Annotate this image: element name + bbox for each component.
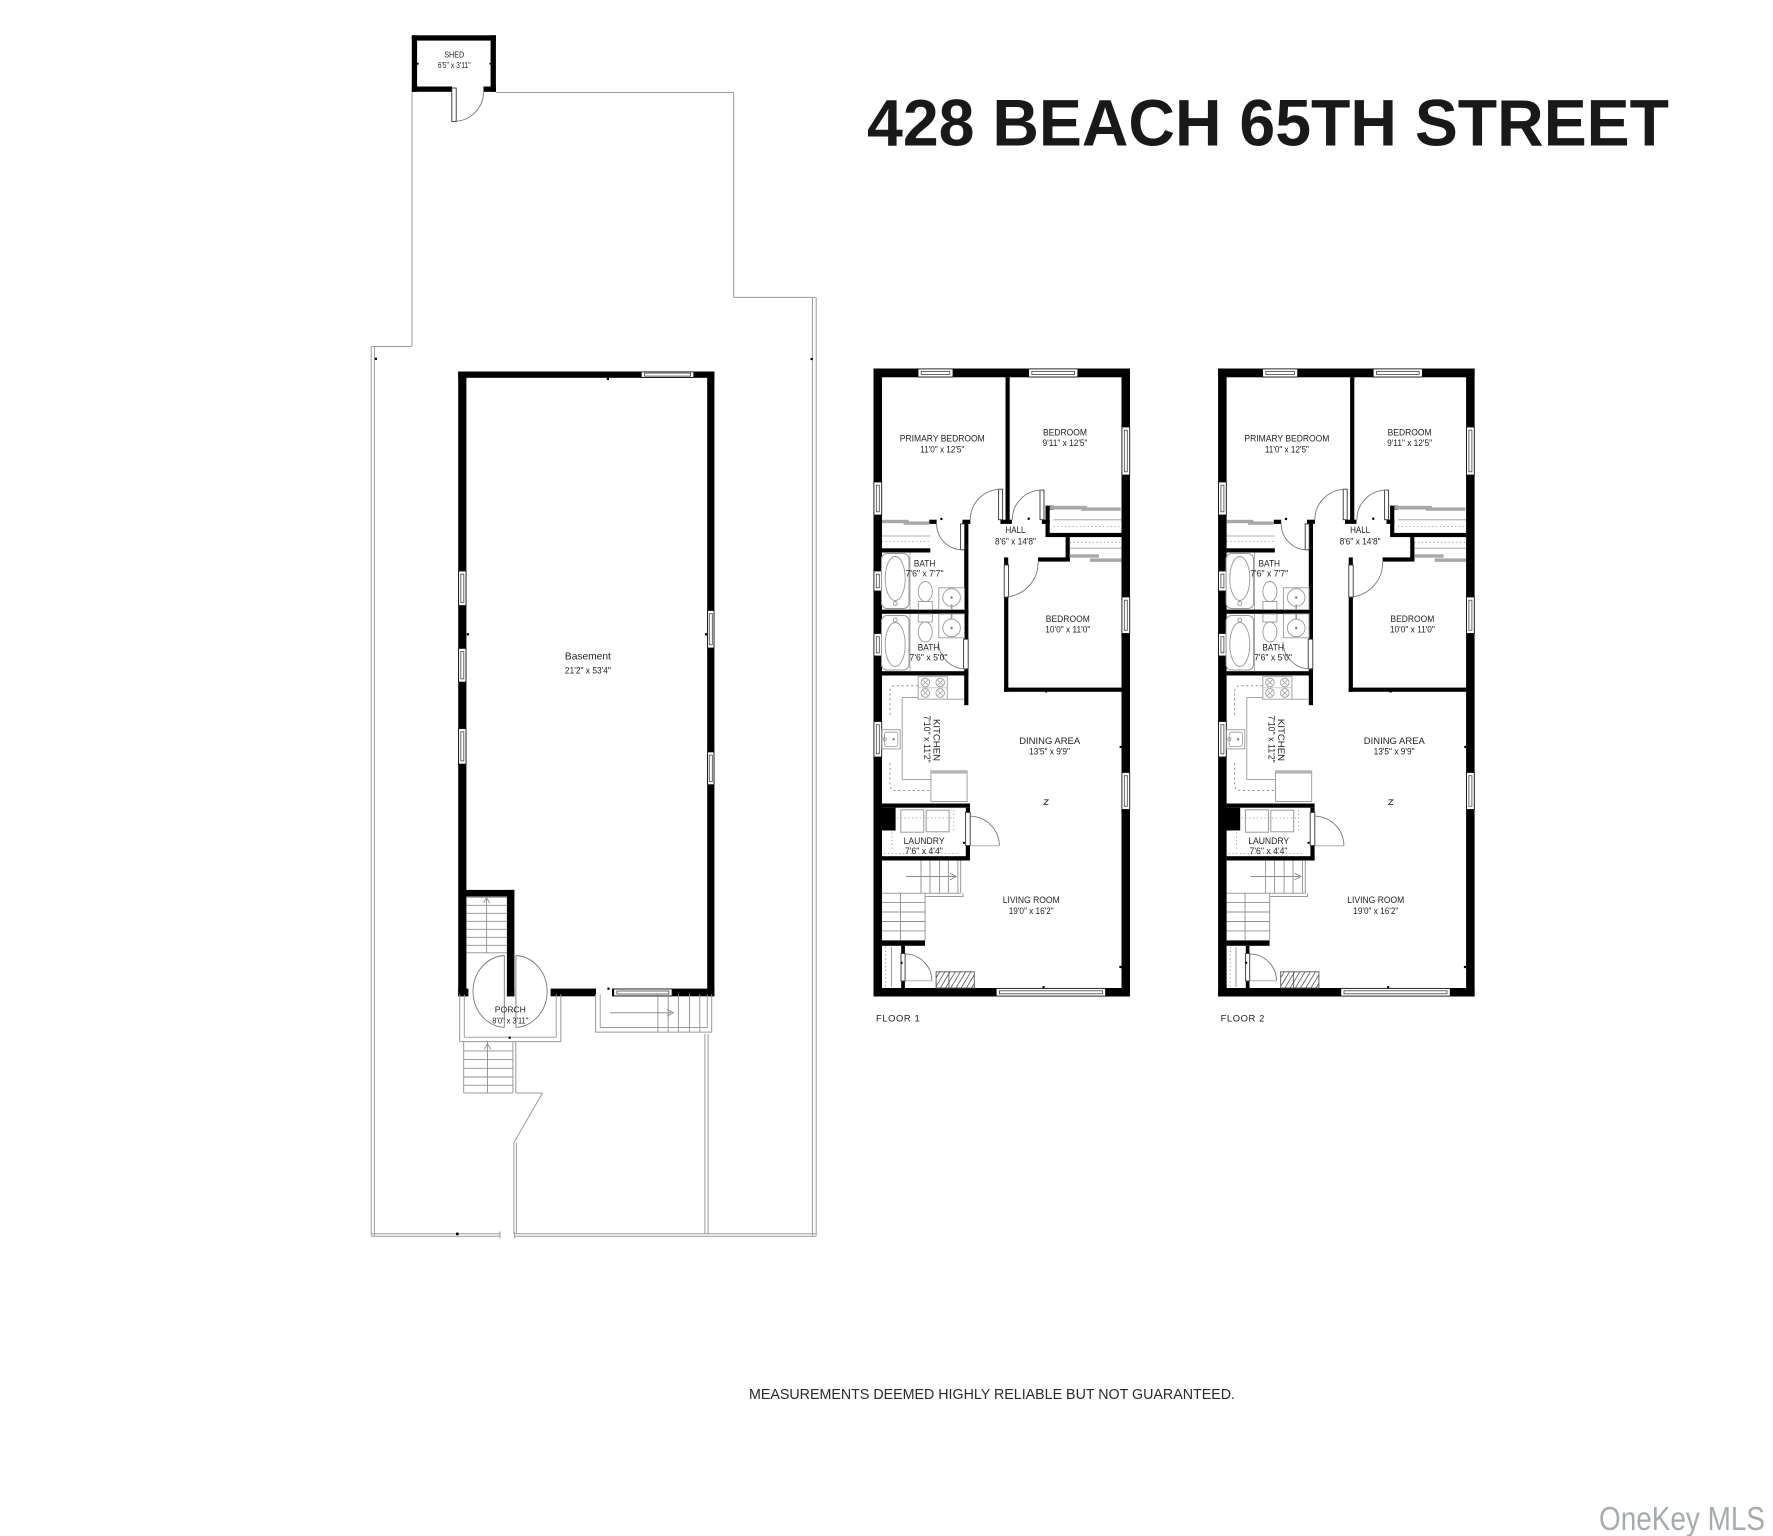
- svg-text:FLOOR 1: FLOOR 1: [876, 1013, 920, 1024]
- svg-text:MEASUREMENTS DEEMED HIGHLY REL: MEASUREMENTS DEEMED HIGHLY RELIABLE BUT …: [749, 1386, 1235, 1403]
- svg-text:BEDROOM: BEDROOM: [1046, 614, 1090, 625]
- svg-text:7'10" x 11'2": 7'10" x 11'2": [922, 715, 932, 763]
- svg-text:8'6" x 14'8": 8'6" x 14'8": [995, 537, 1036, 547]
- svg-text:9'11" x 12'5": 9'11" x 12'5": [1387, 438, 1432, 448]
- svg-text:10'0" x 11'0": 10'0" x 11'0": [1045, 625, 1090, 635]
- svg-text:DINING AREA: DINING AREA: [1364, 736, 1426, 747]
- svg-text:BEDROOM: BEDROOM: [1388, 427, 1432, 438]
- svg-text:7'6" x 5'0": 7'6" x 5'0": [1254, 652, 1292, 662]
- svg-text:7'6" x 7'7": 7'6" x 7'7": [1250, 569, 1288, 579]
- svg-text:SHED: SHED: [444, 51, 464, 60]
- svg-text:9'11" x 12'5": 9'11" x 12'5": [1043, 438, 1088, 448]
- svg-text:BEDROOM: BEDROOM: [1043, 427, 1087, 438]
- svg-text:BEDROOM: BEDROOM: [1390, 614, 1434, 625]
- svg-text:OneKey MLS: OneKey MLS: [1599, 1501, 1765, 1536]
- svg-text:PRIMARY BEDROOM: PRIMARY BEDROOM: [1244, 433, 1329, 444]
- svg-text:HALL: HALL: [1350, 525, 1371, 536]
- svg-text:11'0" x 12'5": 11'0" x 12'5": [920, 444, 964, 454]
- svg-text:Basement: Basement: [565, 652, 611, 663]
- svg-text:FLOOR 2: FLOOR 2: [1221, 1013, 1265, 1024]
- svg-text:19'0" x 16'2": 19'0" x 16'2": [1353, 906, 1398, 916]
- svg-text:11'0" x 12'5": 11'0" x 12'5": [1265, 444, 1309, 454]
- svg-text:8'0" x 3'11": 8'0" x 3'11": [492, 1017, 528, 1026]
- svg-text:19'0" x 16'2": 19'0" x 16'2": [1009, 906, 1054, 916]
- svg-text:13'5" x 9'9": 13'5" x 9'9": [1374, 747, 1415, 757]
- svg-text:10'0" x 11'0": 10'0" x 11'0": [1390, 625, 1435, 635]
- svg-text:7'6" x 7'7": 7'6" x 7'7": [906, 569, 944, 579]
- svg-text:PORCH: PORCH: [495, 1006, 526, 1015]
- svg-text:LIVING ROOM: LIVING ROOM: [1347, 895, 1404, 906]
- svg-text:PRIMARY BEDROOM: PRIMARY BEDROOM: [900, 433, 985, 444]
- svg-text:7'10" x 11'2": 7'10" x 11'2": [1266, 715, 1276, 763]
- svg-text:8'6" x 14'8": 8'6" x 14'8": [1340, 537, 1381, 547]
- svg-text:13'5" x 9'9": 13'5" x 9'9": [1029, 747, 1070, 757]
- svg-text:LIVING ROOM: LIVING ROOM: [1003, 895, 1060, 906]
- svg-text:HALL: HALL: [1006, 525, 1027, 536]
- svg-text:DINING AREA: DINING AREA: [1019, 736, 1081, 747]
- svg-text:21'2" x 53'4": 21'2" x 53'4": [565, 666, 611, 676]
- svg-text:7'6" x 5'0": 7'6" x 5'0": [910, 652, 948, 662]
- svg-text:428 BEACH 65TH STREET: 428 BEACH 65TH STREET: [867, 86, 1669, 160]
- svg-text:7'6" x 4'4": 7'6" x 4'4": [1250, 846, 1288, 856]
- svg-text:7'6" x 4'4": 7'6" x 4'4": [905, 846, 943, 856]
- svg-text:6'5" x 3'11": 6'5" x 3'11": [438, 61, 471, 70]
